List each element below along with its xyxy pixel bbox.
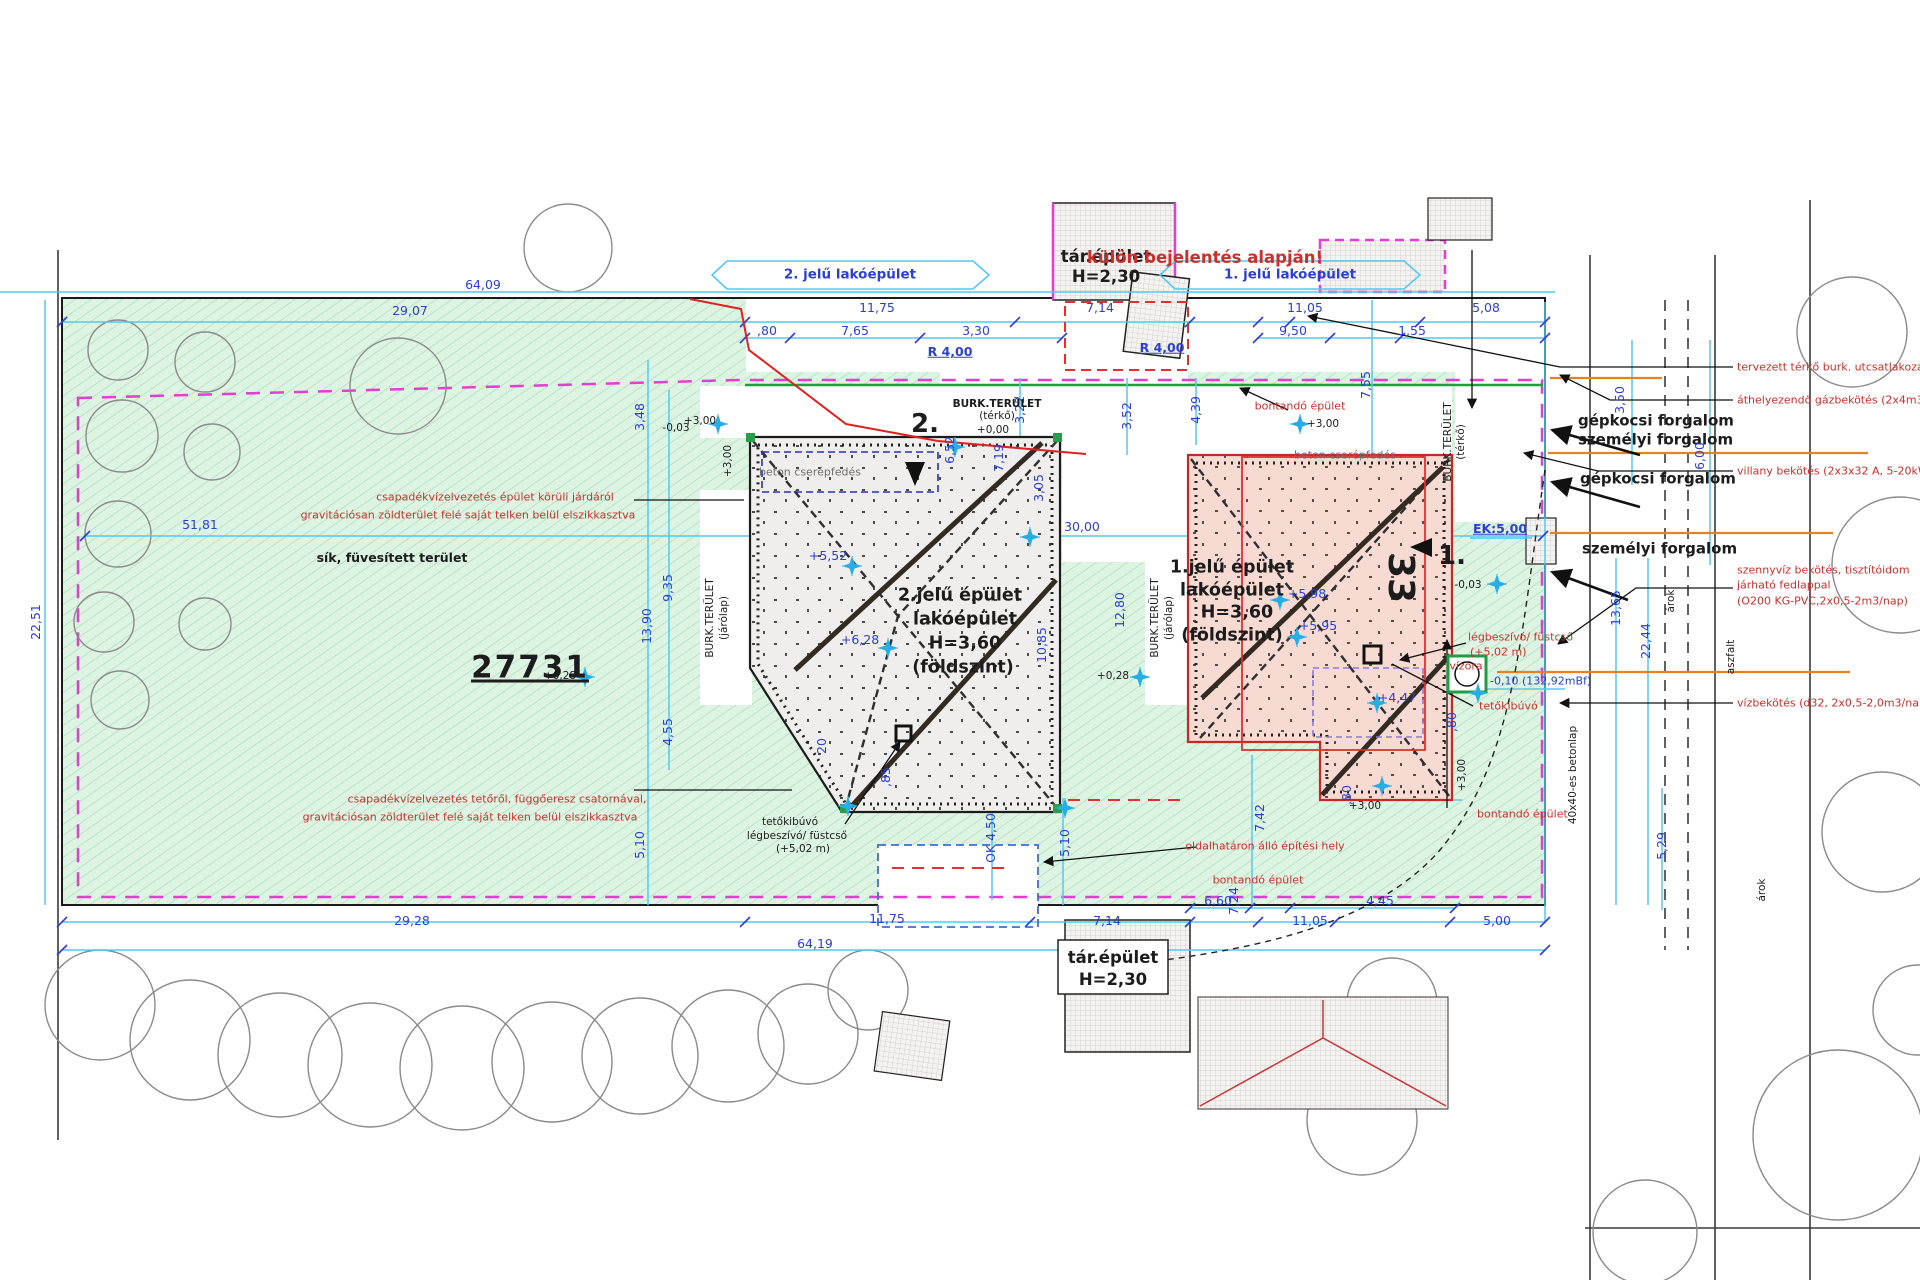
label-szennyviz-1: szennyvíz bekötés, tisztítóidom (1737, 565, 1910, 576)
annotation-label: 11,05 (1292, 915, 1328, 928)
annotation-label: +5,95 (1299, 620, 1337, 633)
annotation-label: 64,09 (465, 279, 501, 292)
annotation-label: (járólap) (1164, 596, 1175, 640)
label-vizbekotes: vízbekötés (d32, 2x0,5-2,0m3/nap) (1737, 698, 1920, 709)
annotation-label: R 4,00 (1140, 342, 1185, 355)
annotation-label: 7,14 (1093, 915, 1121, 928)
annotation-label: H=3,60 (1201, 604, 1274, 622)
annotation-label: 7,65 (841, 325, 869, 338)
building2-title: 2.jelű épület (898, 587, 1022, 605)
annotation-label: 3,48 (634, 403, 647, 431)
annotation-label: -0,10 (132,92mBf) (1490, 676, 1591, 687)
annotation-label: 22,51 (30, 604, 43, 640)
annotation-label: ,80 (1446, 712, 1459, 732)
annotation-label: OK 4,50 (985, 813, 998, 863)
annotation-label: (térkő) (1456, 424, 1467, 460)
label-csapadek-2a: csapadékvízelvezetés tetőről, függőeresz… (348, 794, 647, 805)
annotation-label: +3,00 (1307, 419, 1339, 430)
annotation-label: 5,29 (1656, 832, 1669, 860)
annotation-label: 7,55 (1360, 371, 1373, 399)
annotation-label: 11,75 (869, 913, 905, 926)
annotation-label: 6,52 (944, 436, 957, 464)
annotation-label: +0,28 (544, 671, 576, 682)
house-number: 33 (1382, 553, 1418, 603)
annotation-label: 1,55 (1398, 325, 1426, 338)
annotation-label: 5,10 (634, 831, 647, 859)
annotation-label: 11,75 (859, 302, 895, 315)
label-tetokibuvo-1: tetőkibúvó (1479, 701, 1538, 712)
annotation-label: (földszint) (912, 659, 1014, 677)
annotation-label: 7,14 (1086, 302, 1114, 315)
annotation-label: -0,03 (662, 423, 689, 434)
label-bontando-top: bontandó épület (1255, 401, 1346, 412)
annotation-label: H=2,30 (1079, 972, 1147, 989)
annotation-label: 22,44 (1640, 623, 1653, 659)
annotation-label: 40x40-es betonlap (1568, 726, 1579, 824)
annotation-label: R 4,00 (928, 346, 973, 359)
annotation-label: (földszint) (1181, 627, 1283, 645)
annotation-label: lakóépület (913, 611, 1017, 629)
marker-2: 2. (911, 411, 939, 437)
label-gepkocsi-2: gépkocsi forgalom (1580, 472, 1736, 487)
annotation-label: (+5,02 m) (1470, 647, 1527, 658)
annotation-label: légbeszívó/ füstcső (747, 831, 847, 842)
annotation-label: 9,35 (662, 574, 675, 602)
label-bontando-bottom: bontandó épület (1213, 875, 1304, 886)
annotation-label: 10,85 (1036, 627, 1049, 663)
annotation-label: 4,55 (662, 718, 675, 746)
annotation-label: 4,45 (1366, 895, 1394, 908)
annotation-label: 6,00 (1694, 442, 1707, 470)
annotation-label: +3,00 (723, 445, 734, 477)
annotation-label: +5,98 (1288, 588, 1326, 601)
label-tervezett-terko: tervezett térkő burk. utcsatlakozás (1737, 362, 1920, 373)
annotation-label: árok (1666, 589, 1677, 612)
label-oldalhataron: oldalhatáron álló építési hely (1185, 841, 1344, 852)
label-gepkocsi-1: gépkocsi forgalom (1578, 414, 1734, 429)
label-lakoepulet-2: 2. jelű lakóépület (784, 268, 916, 282)
annotation-label: EK:5,00 (1473, 523, 1527, 536)
label-lakoepulet-1: 1. jelű lakóépület (1224, 268, 1356, 282)
annotation-label: ,85 (880, 767, 893, 787)
annotation-label: 12,80 (1114, 592, 1127, 628)
label-szemelyi-1: személyi forgalom (1578, 433, 1733, 448)
annotation-label: 7,19 (993, 444, 1006, 472)
label-burkterulet-terko: BURK.TERÜLET (953, 399, 1042, 410)
traffic-arrows (1552, 430, 1640, 600)
annotation-label: 3,52 (1121, 402, 1134, 430)
annotation-label: 5,10 (1059, 829, 1072, 857)
annotation-label: BURK.TERÜLET (705, 578, 716, 657)
annotation-label: +3,00 (1349, 801, 1381, 812)
label-szemelyi-2: személyi forgalom (1582, 542, 1737, 557)
annotation-label: +0,28 (1097, 671, 1129, 682)
annotation-label: árok (1757, 878, 1768, 901)
annotation-label: 30,00 (1064, 521, 1100, 534)
label-legbeszivo-1: légbeszívó/ füstcső (1468, 632, 1573, 643)
annotation-label: +3,00 (1457, 759, 1468, 791)
site-plan: 2. jelű lakóépülettár.épületH=2,30külön … (0, 0, 1920, 1280)
annotation-label: (járólap) (719, 596, 730, 640)
annotation-label: járható fedlappal (1737, 580, 1831, 591)
annotation-label: 5,00 (1483, 915, 1511, 928)
annotation-label: 20 (816, 738, 829, 754)
marker-1: 1. (1438, 543, 1466, 569)
label-tarepulet-top-h: H=2,30 (1072, 269, 1140, 286)
annotation-label: lakóépület (1180, 582, 1284, 600)
annotation-label: (+5,02 m) (776, 844, 830, 855)
annotation-label: gravitációsan zöldterület felé saját tel… (303, 812, 638, 823)
annotation-label: 5,08 (1472, 302, 1500, 315)
annotation-label: 4,39 (1190, 396, 1203, 424)
annotation-label: 11,05 (1287, 302, 1323, 315)
annotation-label: +0,00 (977, 425, 1009, 436)
annotation-label: 6,60 (1204, 895, 1232, 908)
label-tetokibuvo-2: tetőkibúvó (762, 817, 818, 828)
annotation-label: 3,05 (1033, 474, 1046, 502)
annotation-label: 64,19 (797, 938, 833, 951)
label-csapadek-1a: csapadékvízelvezetés épület körüli járdá… (376, 492, 614, 503)
annotation-label: 13,65 (1610, 590, 1623, 626)
annotation-label: 3,50 (1614, 386, 1627, 414)
label-kulon-bejelentes: külön bejelentés alapján! (1087, 250, 1323, 267)
annotation-label: 29,07 (392, 305, 428, 318)
annotation-label: 7,42 (1254, 804, 1267, 832)
annotation-label: BURK.TERÜLET (1443, 402, 1454, 481)
annotation-label: beton cserépfedés (759, 467, 861, 478)
label-villany: villany bekötés (2x3x32 A, 5-20kWh) (1737, 466, 1920, 477)
annotation-label: 3,30 (962, 325, 990, 338)
annotation-label: aszfalt (1726, 640, 1737, 675)
annotation-label: ,80 (757, 325, 777, 338)
label-vizora: vízóra (1449, 661, 1482, 672)
annotation-label: 9,50 (1279, 325, 1307, 338)
annotation-label: 51,81 (182, 519, 218, 532)
annotation-label: 13,90 (641, 608, 654, 644)
annotation-label: +5,52 (809, 550, 847, 563)
annotation-label: +4,47 (1378, 692, 1416, 705)
label-bontando-right: bontandó épület (1477, 809, 1568, 820)
annotation-label: gravitációsan zöldterület felé saját tel… (301, 510, 636, 521)
annotation-label: beton cserépfedés (1294, 450, 1396, 461)
annotation-label: -0,03 (1454, 580, 1481, 591)
annotation-label: +6,28 (841, 634, 879, 647)
annotation-label: (térkő) (979, 411, 1015, 422)
annotation-label: BURK.TERÜLET (1150, 578, 1161, 657)
building1-title: 1.jelű épület (1170, 559, 1294, 577)
annotation-label: 29,28 (394, 915, 430, 928)
annotation-label: (O200 KG-PVC,2x0,5-2m3/nap) (1737, 596, 1908, 607)
label-tarepulet-bottom: tár.épület (1068, 950, 1159, 967)
annotation-label: H=3,60 (929, 635, 1002, 653)
label-gazbekotes: áthelyezendő gázbekötés (2x4m3/h) (1737, 395, 1920, 406)
label-fuvesitett: sík, füvesített terület (317, 552, 468, 565)
